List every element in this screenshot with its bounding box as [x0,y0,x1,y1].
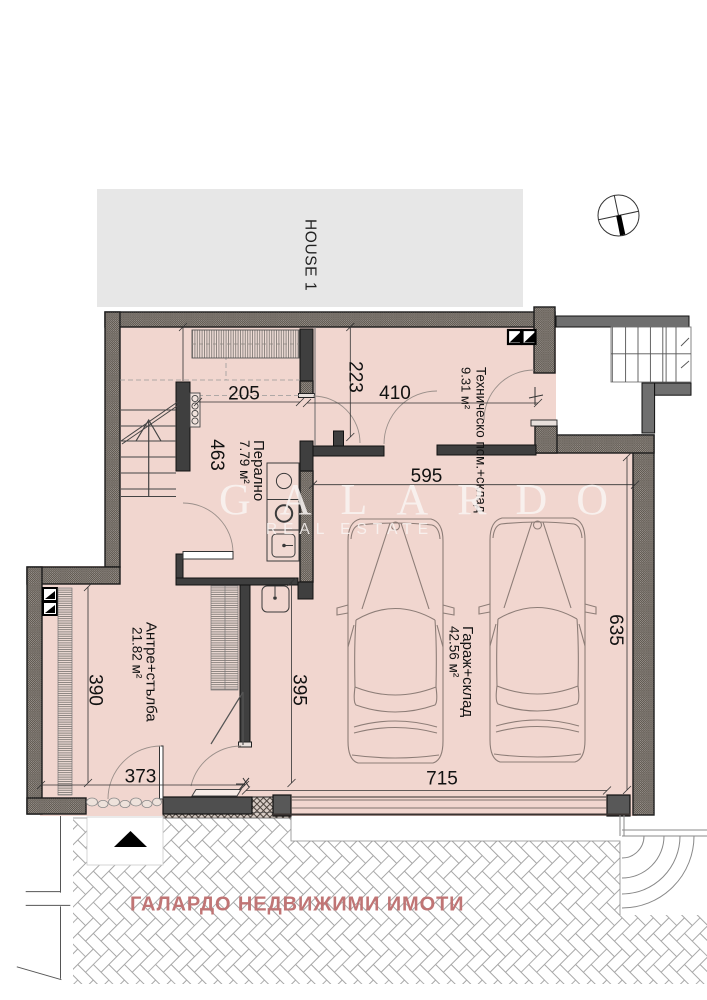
svg-text:GALARDO: GALARDO [219,475,637,524]
svg-text:205: 205 [228,384,260,405]
svg-text:ГАЛАРДО НЕДВИЖИМИ ИМОТИ: ГАЛАРДО НЕДВИЖИМИ ИМОТИ [130,894,464,916]
svg-text:21.82 м²: 21.82 м² [130,627,145,679]
svg-text:REAL ESTATE: REAL ESTATE [266,521,434,538]
svg-text:635: 635 [605,614,626,646]
svg-text:390: 390 [85,674,106,706]
svg-text:HOUSE 1: HOUSE 1 [302,219,319,291]
svg-text:223: 223 [345,361,366,393]
svg-text:9.31 м²: 9.31 м² [459,367,474,410]
svg-text:410: 410 [379,383,411,404]
svg-text:715: 715 [426,769,458,790]
svg-text:373: 373 [125,767,157,788]
svg-text:395: 395 [289,674,310,706]
svg-text:42.56 м²: 42.56 м² [447,626,462,678]
svg-text:463: 463 [206,439,227,471]
